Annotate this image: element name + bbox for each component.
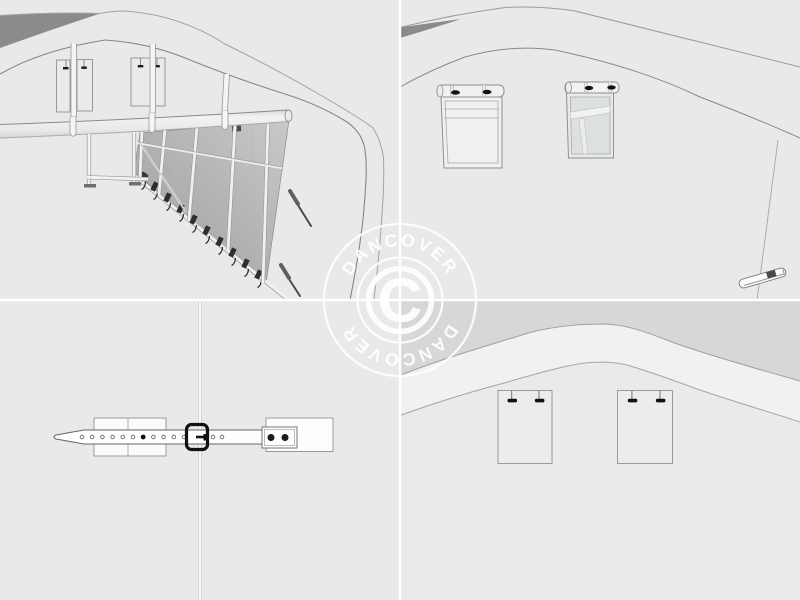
svg-text:C: C	[378, 267, 423, 336]
